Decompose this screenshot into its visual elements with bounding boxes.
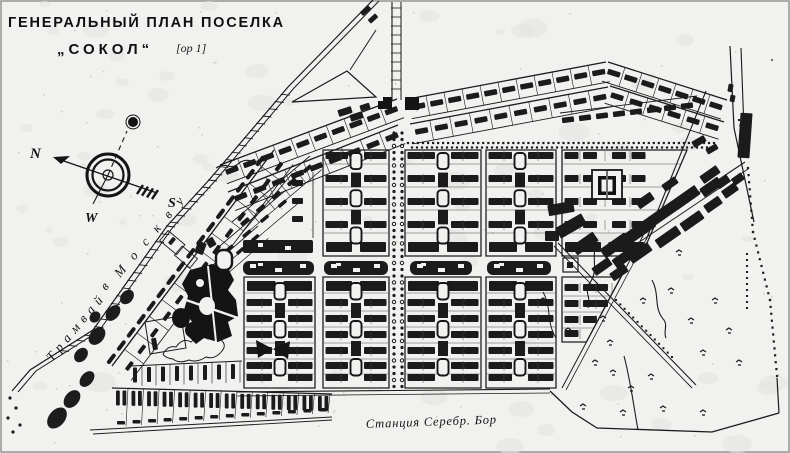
svg-text:N: N xyxy=(29,146,42,162)
svg-text:„СОКОЛ“: „СОКОЛ“ xyxy=(57,41,153,58)
svg-text:[ор 1]: [ор 1] xyxy=(176,41,207,55)
svg-text:W: W xyxy=(85,211,99,226)
svg-text:ГЕНЕРАЛЬНЫЙ ПЛАН ПОСЕЛКА: ГЕНЕРАЛЬНЫЙ ПЛАН ПОСЕЛКА xyxy=(8,13,285,31)
